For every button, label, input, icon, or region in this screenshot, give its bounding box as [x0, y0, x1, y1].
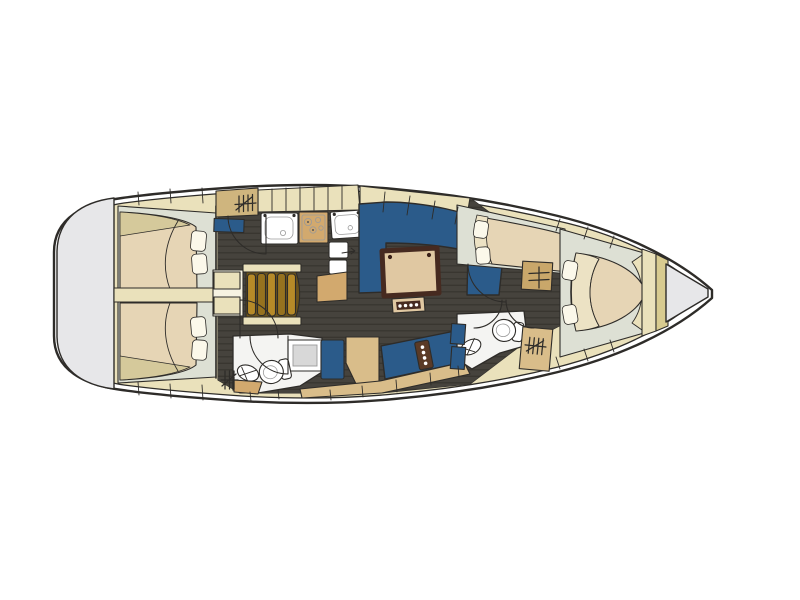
aft-cabin-port: [118, 206, 216, 290]
hanging-locker: [519, 327, 553, 371]
basin-counter: [234, 380, 262, 394]
pillow: [191, 340, 207, 361]
swim-platform-deck: [57, 198, 114, 389]
pillow: [562, 304, 579, 325]
engine-box: [214, 297, 240, 314]
hanging-locker: [216, 188, 258, 217]
pillow: [475, 247, 490, 265]
burner-dot: [307, 221, 309, 223]
yacht-floorplan-diagram: [0, 0, 800, 600]
pillow: [473, 220, 489, 239]
table-peg: [388, 255, 392, 259]
pillow: [190, 316, 207, 337]
aft-cabin-starboard: [118, 300, 216, 383]
engine-box: [214, 272, 240, 289]
shelf-cabinet: [521, 261, 552, 291]
head-seat: [450, 324, 465, 345]
pillow: [561, 260, 578, 281]
counter-peninsula: [317, 272, 347, 302]
shower-pan: [293, 345, 317, 366]
burner-dot: [312, 229, 314, 231]
stool-dot: [409, 304, 412, 307]
swim-platform: [57, 198, 114, 389]
nav-seat: [321, 340, 344, 379]
salon-stool: [392, 297, 425, 313]
table-peg: [427, 253, 431, 257]
bow-bulkhead: [642, 249, 656, 336]
step: [268, 273, 276, 316]
steps-cap: [243, 264, 301, 272]
deck-locker-row: [258, 185, 360, 212]
step: [248, 274, 256, 315]
pillow: [191, 253, 207, 274]
stool-dot: [415, 303, 418, 306]
pillow: [190, 230, 207, 251]
step: [278, 274, 286, 316]
stool-dot: [404, 304, 407, 307]
stove-frame: [299, 212, 328, 243]
stool-dot: [398, 304, 401, 307]
fridge-box: [329, 242, 348, 258]
yacht-floorplan-canvas: [0, 0, 800, 600]
galley-stove: [299, 212, 328, 243]
faucet-dot: [292, 214, 295, 217]
companionway: [213, 264, 301, 325]
step: [288, 274, 296, 315]
